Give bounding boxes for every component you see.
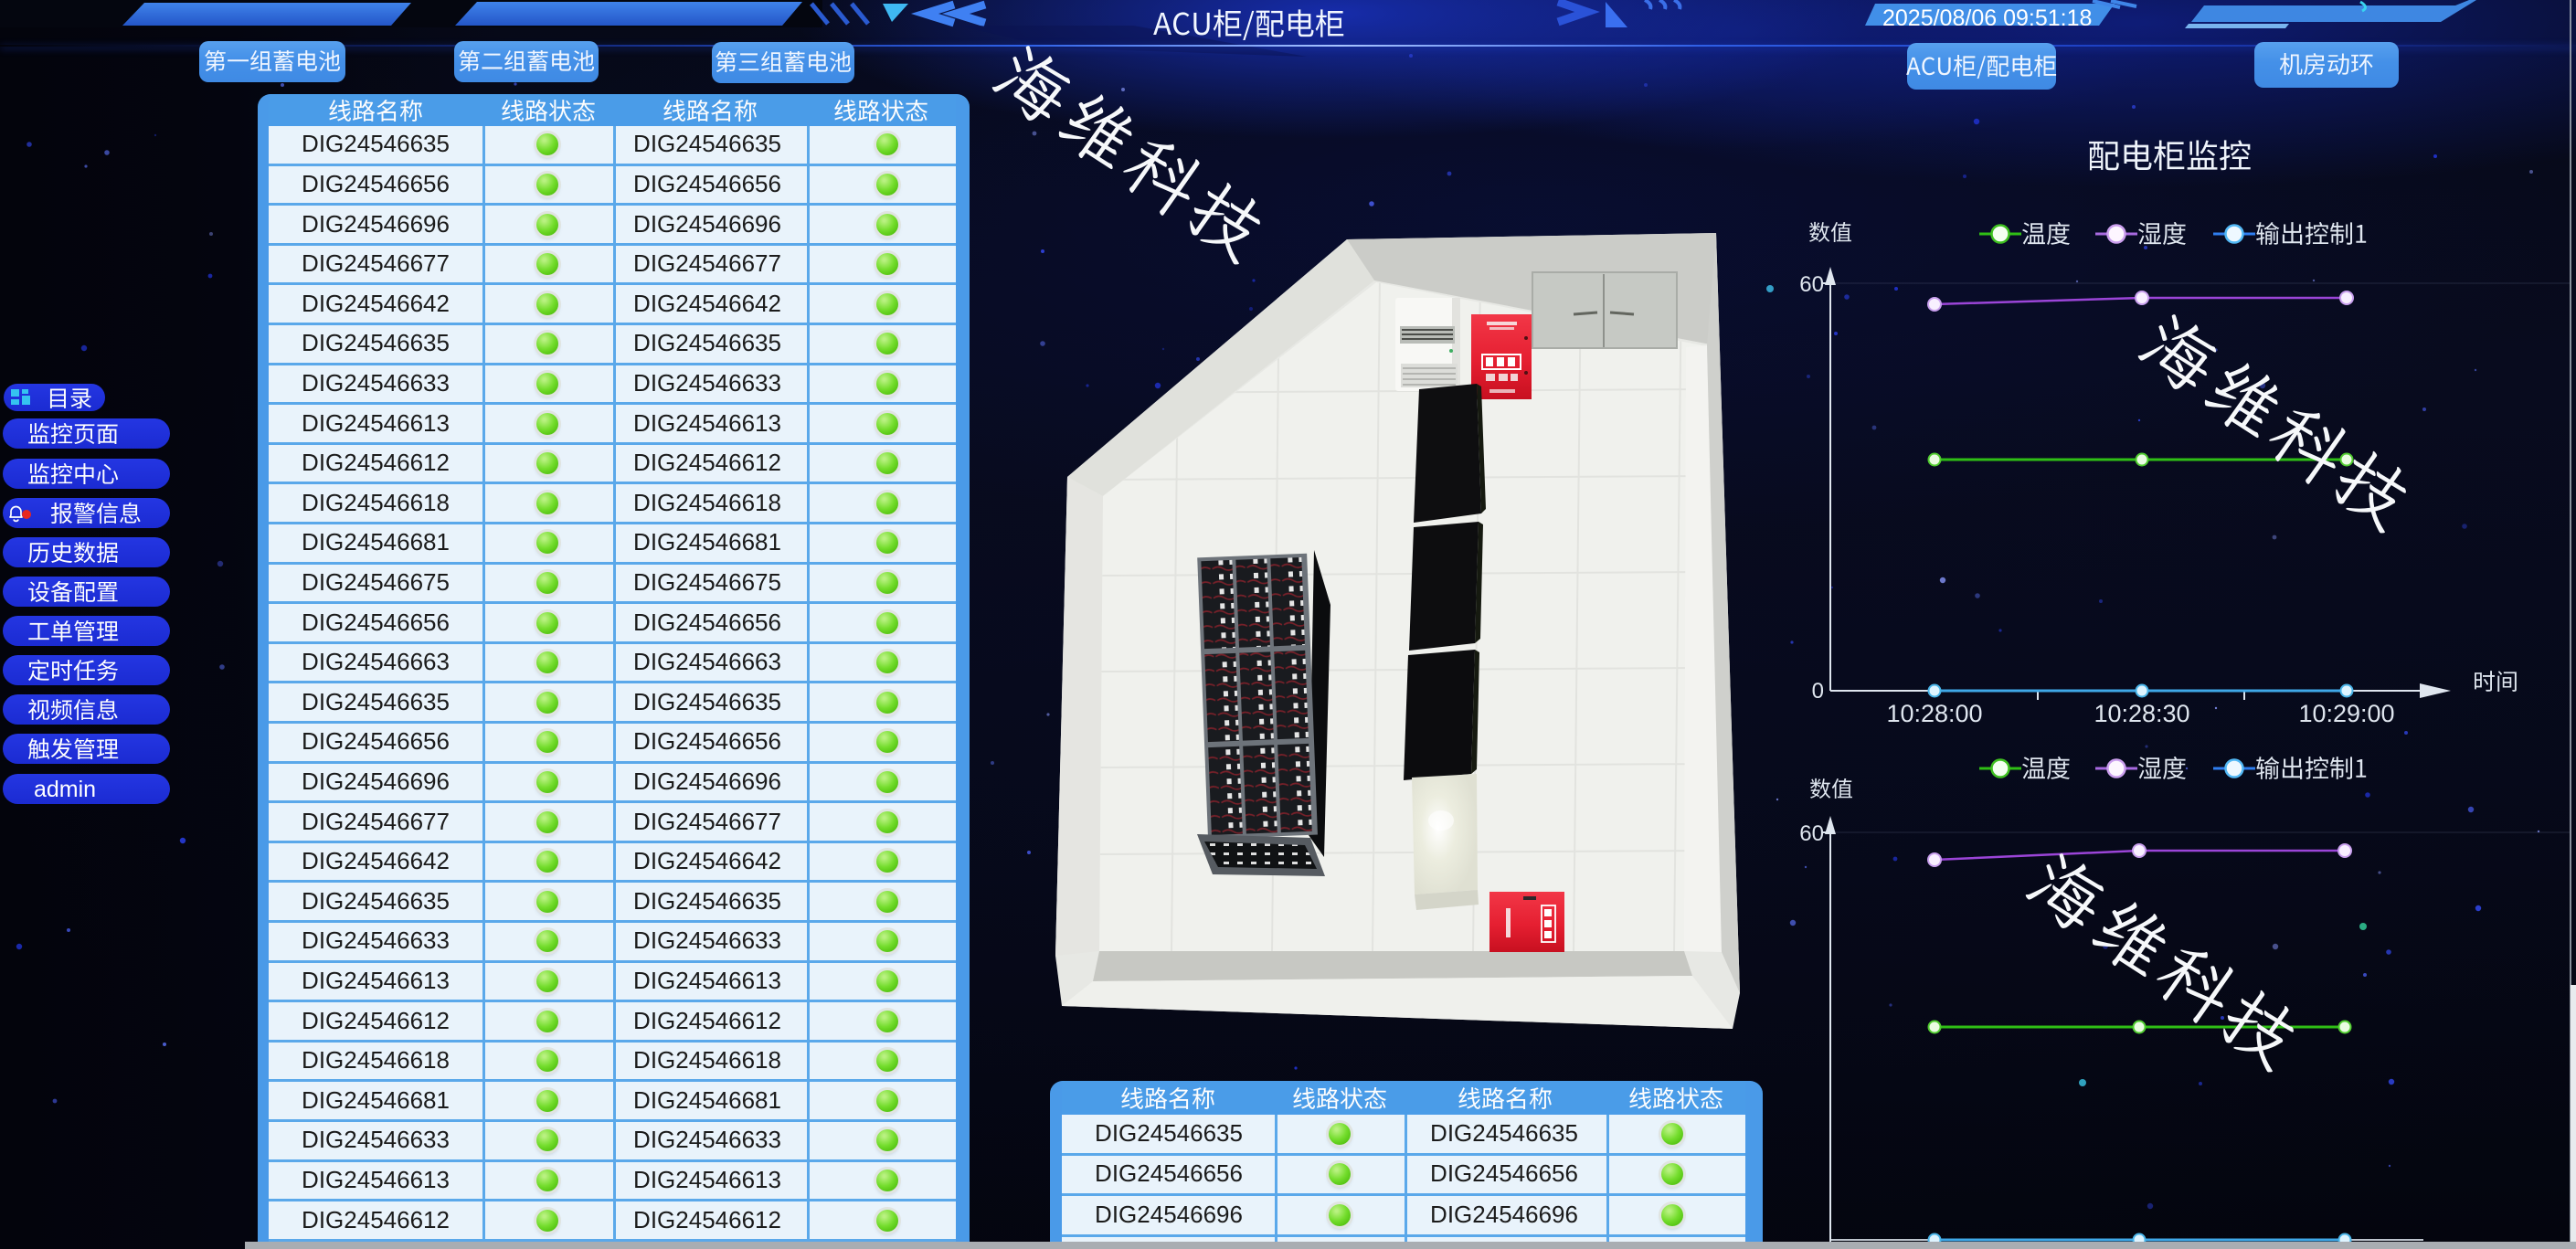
svg-text:10:28:00: 10:28:00 — [1886, 700, 1982, 727]
svg-text:10:29:00: 10:29:00 — [2298, 700, 2394, 727]
svg-text:60: 60 — [1799, 821, 1824, 846]
svg-text:60: 60 — [1799, 272, 1824, 297]
svg-text:10:28:30: 10:28:30 — [2094, 700, 2189, 727]
svg-text:0: 0 — [1812, 679, 1824, 704]
